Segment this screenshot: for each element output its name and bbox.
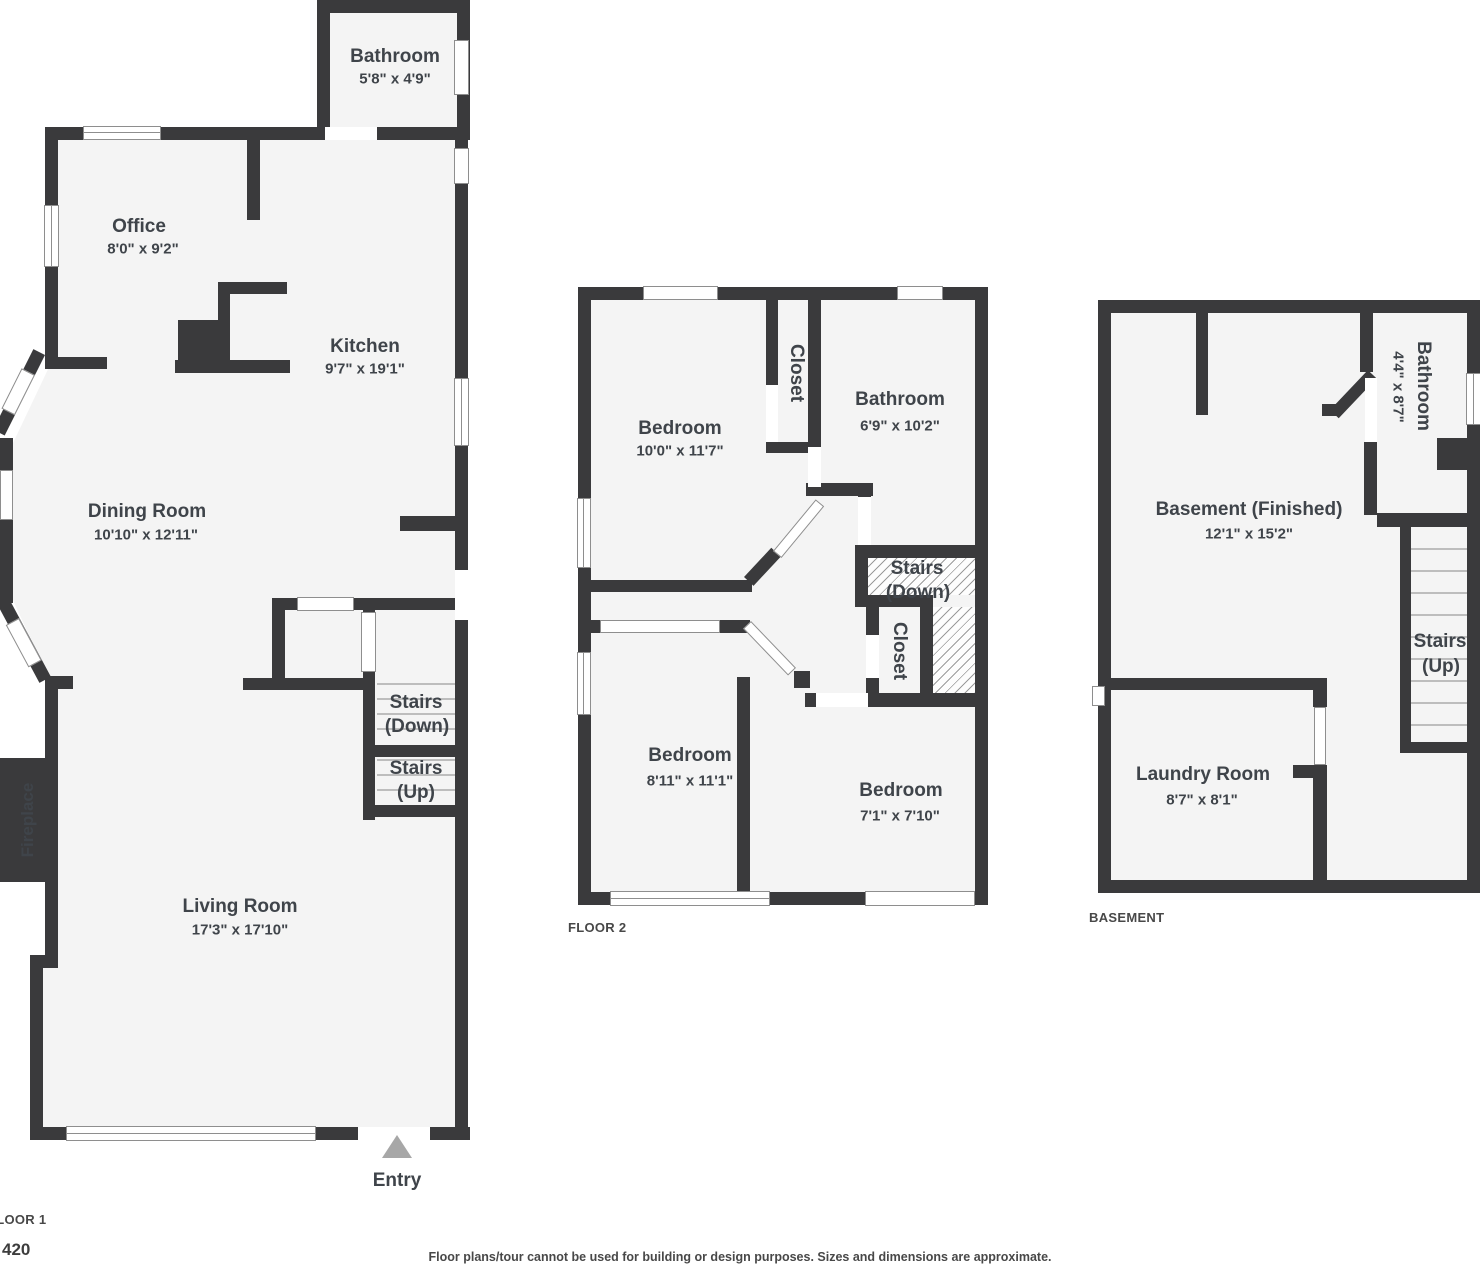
bsmt-stairs-up-line1: Stairs [1414, 631, 1467, 653]
wall [1313, 765, 1327, 893]
window [0, 470, 13, 520]
window [600, 620, 720, 633]
floor1-area [0, 0, 470, 1140]
wall [1098, 880, 1480, 893]
f1-stairs-down-line1: Stairs [390, 692, 443, 714]
stair-tread [1411, 548, 1467, 550]
wall [365, 805, 467, 817]
wall [30, 955, 43, 1140]
f2-closet-label: Closet [785, 344, 807, 402]
bsmt-main-name: Basement (Finished) [1156, 499, 1343, 521]
wall [370, 745, 467, 757]
wall [317, 0, 330, 140]
window [44, 205, 59, 267]
floor-plan-page: Bathroom 5'8" x 4'9" Office 8'0" x 9'2" … [0, 0, 1480, 1267]
wall [1400, 527, 1411, 752]
wall [855, 545, 988, 558]
wall [175, 360, 290, 373]
window [297, 597, 354, 611]
stair-tread [1411, 592, 1467, 594]
window [454, 378, 469, 446]
wall [737, 677, 750, 893]
wall [794, 671, 810, 688]
wall [920, 595, 933, 707]
wall [808, 300, 821, 447]
window [610, 891, 770, 906]
f2-bedroom2-dims: 8'11" x 11'1" [647, 773, 733, 790]
wall [578, 287, 591, 905]
stair-tread [1411, 680, 1467, 682]
f1-dining-dims: 10'10" x 12'11" [94, 527, 198, 544]
wall [578, 580, 752, 592]
wall [0, 438, 13, 603]
window [577, 652, 591, 715]
door-opening [325, 127, 377, 140]
stair-tread [1411, 724, 1467, 726]
window [643, 286, 718, 300]
wall [1098, 678, 1327, 690]
wall [243, 678, 375, 690]
bsmt-stairs-up-line2: (Up) [1422, 656, 1460, 678]
window [1314, 707, 1326, 765]
wall [583, 620, 600, 633]
floor1-tag: FLOOR 1 [0, 1212, 46, 1227]
f1-entry-label: Entry [373, 1170, 422, 1192]
door-opening [766, 385, 778, 442]
basement-tag: BASEMENT [1089, 910, 1164, 925]
stair-tread [377, 683, 455, 685]
door-opening [808, 447, 821, 487]
bsmt-laundry-name: Laundry Room [1136, 764, 1270, 786]
door-opening [455, 570, 468, 620]
f2-bedroom3-name: Bedroom [859, 780, 942, 802]
f2-closet2-label: Closet [888, 622, 910, 680]
wall [455, 127, 468, 1140]
f2-bathroom-name: Bathroom [855, 389, 945, 411]
wall [317, 0, 470, 13]
door-opening [866, 635, 879, 678]
f1-bathroom-name: Bathroom [350, 46, 440, 68]
f1-living-dims: 17'3" x 17'10" [192, 922, 288, 939]
wall [1437, 438, 1480, 470]
window [83, 126, 161, 140]
disclaimer-text: Floor plans/tour cannot be used for buil… [428, 1250, 1051, 1264]
f2-bathroom-dims: 6'9" x 10'2" [860, 418, 940, 435]
window [897, 286, 943, 300]
unit-number: 420 [2, 1240, 30, 1260]
bsmt-bathroom-name: Bathroom [1412, 341, 1434, 431]
wall [1098, 300, 1111, 893]
bsmt-laundry-dims: 8'7" x 8'1" [1166, 792, 1237, 809]
window [577, 498, 591, 568]
window [66, 1126, 316, 1141]
wall [272, 598, 285, 690]
f1-dining-name: Dining Room [88, 501, 206, 523]
f1-fireplace-label: Fireplace [18, 783, 38, 858]
wall [1400, 742, 1470, 753]
f1-bathroom-dims: 5'8" x 4'9" [359, 71, 430, 88]
stair-tread [1411, 702, 1467, 704]
stair-tread [1411, 570, 1467, 572]
window [454, 148, 469, 184]
f1-stairs-up-line1: Stairs [390, 758, 443, 780]
window [1466, 373, 1480, 425]
f1-kitchen-name: Kitchen [330, 336, 400, 358]
wall [45, 357, 107, 369]
wall [247, 127, 260, 220]
floor2-tag: FLOOR 2 [568, 920, 626, 935]
f2-bedroom3-dims: 7'1" x 7'10" [860, 808, 940, 825]
window [1092, 686, 1105, 706]
door-opening [858, 497, 871, 545]
f1-living-name: Living Room [182, 896, 297, 918]
f1-stairs-down-line2: (Down) [385, 716, 449, 738]
window [454, 40, 469, 95]
window [865, 891, 975, 906]
f2-stairs-down-line1: Stairs [891, 558, 944, 580]
f2-bedroom2-name: Bedroom [648, 745, 731, 767]
wall [1360, 305, 1373, 372]
door-opening [1365, 378, 1377, 442]
f1-office-dims: 8'0" x 9'2" [107, 241, 178, 258]
bsmt-bathroom-dims: 4'4" x 8'7" [1390, 351, 1407, 422]
wall [45, 676, 58, 758]
wall [975, 287, 988, 905]
wall [1364, 442, 1377, 515]
wall [400, 516, 467, 531]
door-opening [816, 693, 868, 707]
f2-bedroom1-name: Bedroom [638, 418, 721, 440]
wall [766, 442, 808, 453]
f1-office-name: Office [112, 216, 166, 238]
entry-marker-icon [382, 1135, 412, 1158]
hatch-fill [933, 607, 975, 693]
f1-kitchen-dims: 9'7" x 19'1" [325, 361, 405, 378]
wall [1196, 300, 1208, 415]
f1-stairs-up-line2: (Up) [397, 782, 435, 804]
wall [1377, 513, 1480, 527]
window [361, 612, 376, 672]
wall [1098, 300, 1480, 313]
stair-tread [1411, 614, 1467, 616]
f2-bedroom1-dims: 10'0" x 11'7" [636, 443, 723, 460]
f2-stairs-down-line2: (Down) [886, 582, 950, 604]
wall [1313, 678, 1327, 707]
bsmt-main-dims: 12'1" x 15'2" [1205, 526, 1293, 543]
